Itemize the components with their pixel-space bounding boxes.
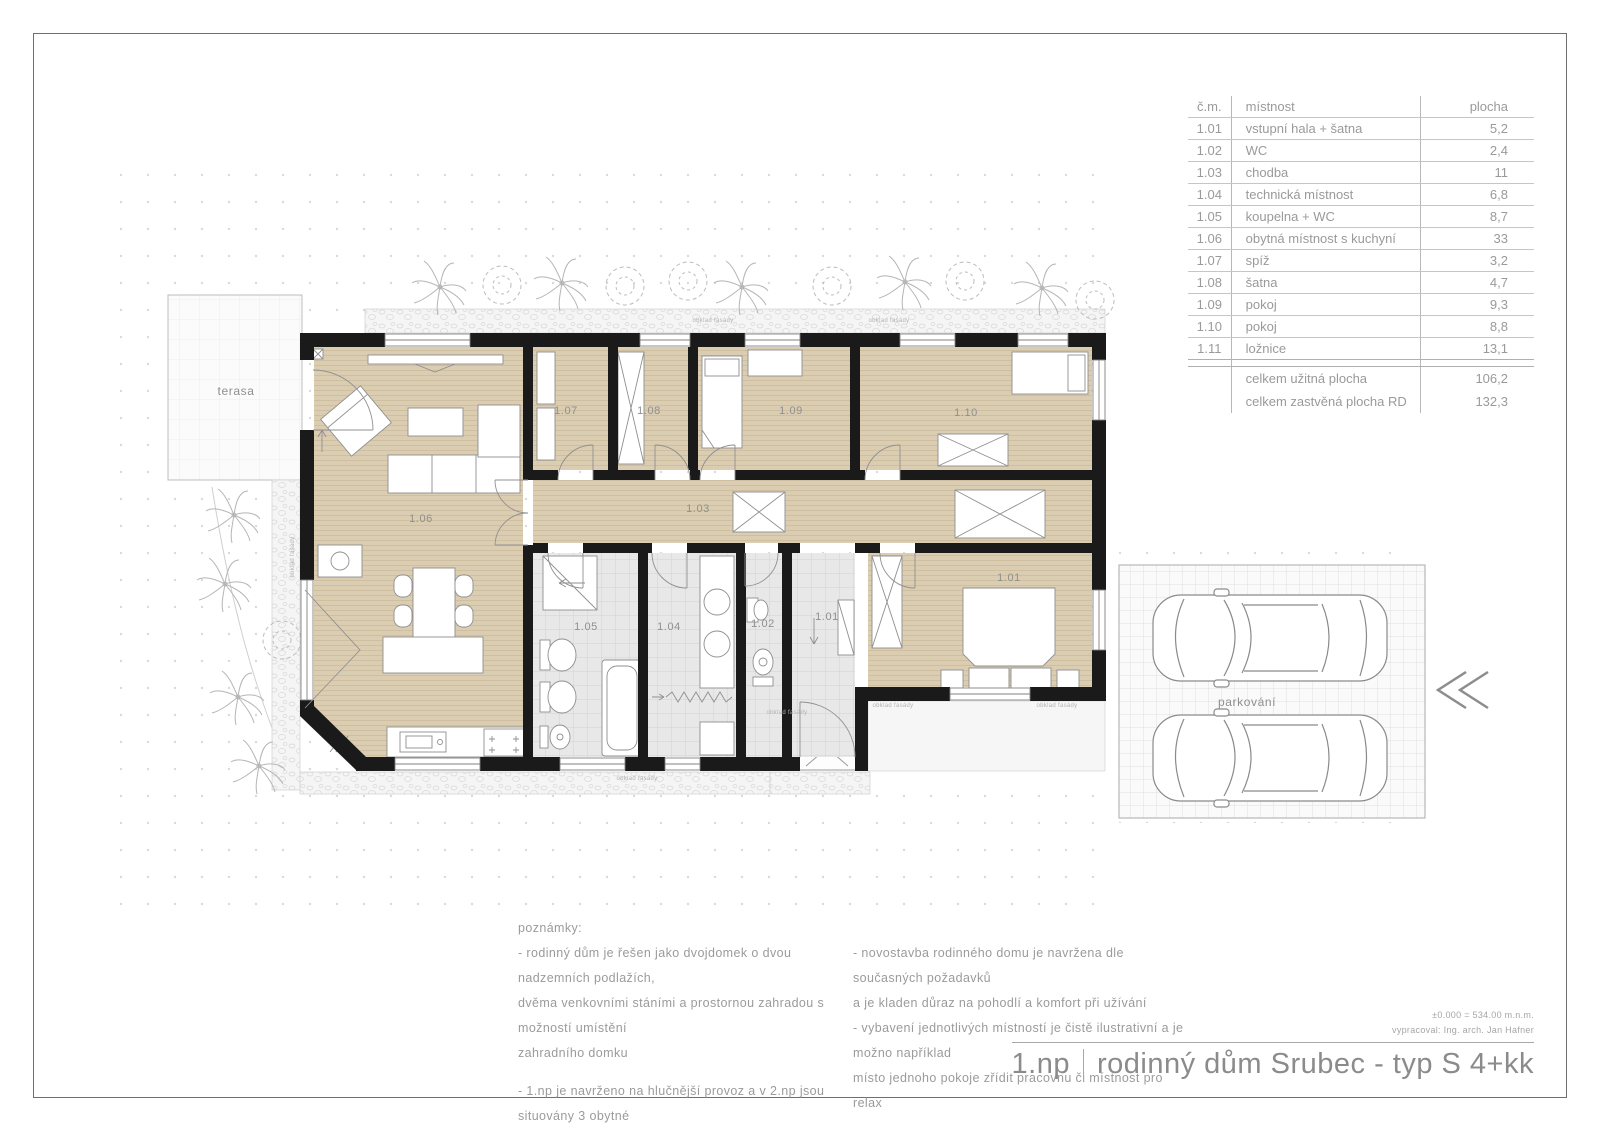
room-label-closet: 1.08 <box>637 405 661 417</box>
facade-label: obklad fasády <box>869 318 910 324</box>
room-label-entry-hall: 1.01 <box>815 611 839 623</box>
facade-label: obklad fasády <box>617 776 658 782</box>
facade-label: obklad fasády <box>290 537 296 578</box>
room-label-living: 1.06 <box>409 513 433 525</box>
title-block: ±0.000 = 534.00 m.n.m. vypracoval: Ing. … <box>974 1008 1534 1081</box>
room-label-corridor: 1.03 <box>686 503 710 515</box>
table-total-row: celkem zastvěná plocha RD 132,3 <box>1188 390 1534 413</box>
parking-pad <box>1119 565 1488 818</box>
room-area-table: č.m. místnost plocha 1.01vstupní hala + … <box>1188 96 1534 413</box>
car-top-icon <box>1153 589 1387 687</box>
room-label-bathroom: 1.05 <box>574 621 598 633</box>
table-row: 1.11ložnice13,1 <box>1188 338 1534 360</box>
floor-number: 1.np <box>1012 1048 1070 1081</box>
table-total-row: celkem užitná plocha 106,2 <box>1188 367 1534 391</box>
header-area: plocha <box>1421 96 1534 118</box>
room-label-pantry: 1.07 <box>554 405 578 417</box>
notes-left-column: poznámky: - rodinný dům je řešen jako dv… <box>518 916 858 1131</box>
note-line: - 1.np je navrženo na hlučnější provoz a… <box>518 1079 858 1129</box>
room-label-room2: 1.10 <box>954 407 978 419</box>
west-direction-chevrons-icon <box>1438 672 1488 708</box>
header-name: místnost <box>1231 96 1421 118</box>
author-credit: vypracoval: Ing. arch. Jan Hafner <box>974 1023 1534 1038</box>
drawing-sheet: terasa parkování 1.06 1.07 1.08 1.09 1.1… <box>0 0 1600 1131</box>
note-line: - novostavba rodinného domu je navržena … <box>853 941 1193 991</box>
car-bottom-icon <box>1153 709 1387 807</box>
parking-label: parkování <box>1218 695 1276 709</box>
table-row: 1.08šatna4,7 <box>1188 272 1534 294</box>
room-label-bedroom: 1.01 <box>997 572 1021 584</box>
table-row: 1.07spíž3,2 <box>1188 250 1534 272</box>
title-divider <box>1083 1049 1084 1081</box>
table-row: 1.05koupelna + WC8,7 <box>1188 206 1534 228</box>
table-row: 1.09pokoj9,3 <box>1188 294 1534 316</box>
header-number: č.m. <box>1188 96 1231 118</box>
room-label-room1: 1.09 <box>779 405 803 417</box>
table-separator <box>1188 360 1534 367</box>
terrace-label: terasa <box>218 384 255 398</box>
facade-label: obklad fasády <box>1037 703 1078 709</box>
elevation-datum: ±0.000 = 534.00 m.n.m. <box>974 1008 1534 1023</box>
room-label-utility: 1.04 <box>657 621 681 633</box>
sheet-title: 1.np rodinný dům Srubec - typ S 4+kk <box>1012 1042 1534 1081</box>
room-label-wc: 1.02 <box>751 618 775 630</box>
project-title: rodinný dům Srubec - typ S 4+kk <box>1097 1048 1534 1081</box>
table-row: 1.01vstupní hala + šatna5,2 <box>1188 118 1534 140</box>
table-row: 1.02WC2,4 <box>1188 140 1534 162</box>
table-row: 1.03chodba11 <box>1188 162 1534 184</box>
table-header-row: č.m. místnost plocha <box>1188 96 1534 118</box>
notes-title: poznámky: <box>518 916 858 941</box>
facade-label: obklad fasády <box>693 318 734 324</box>
note-line: dvěma venkovními stáními a prostornou za… <box>518 991 858 1041</box>
table-row: 1.04technická místnost6,8 <box>1188 184 1534 206</box>
facade-label: obklad fasády <box>767 710 808 716</box>
note-line: - rodinný dům je řešen jako dvojdomek o … <box>518 941 858 991</box>
note-line: zahradního domku <box>518 1041 858 1066</box>
table-row: 1.06obytná místnost s kuchyní33 <box>1188 228 1534 250</box>
table-row: 1.10pokoj8,8 <box>1188 316 1534 338</box>
facade-label: obklad fasády <box>873 703 914 709</box>
